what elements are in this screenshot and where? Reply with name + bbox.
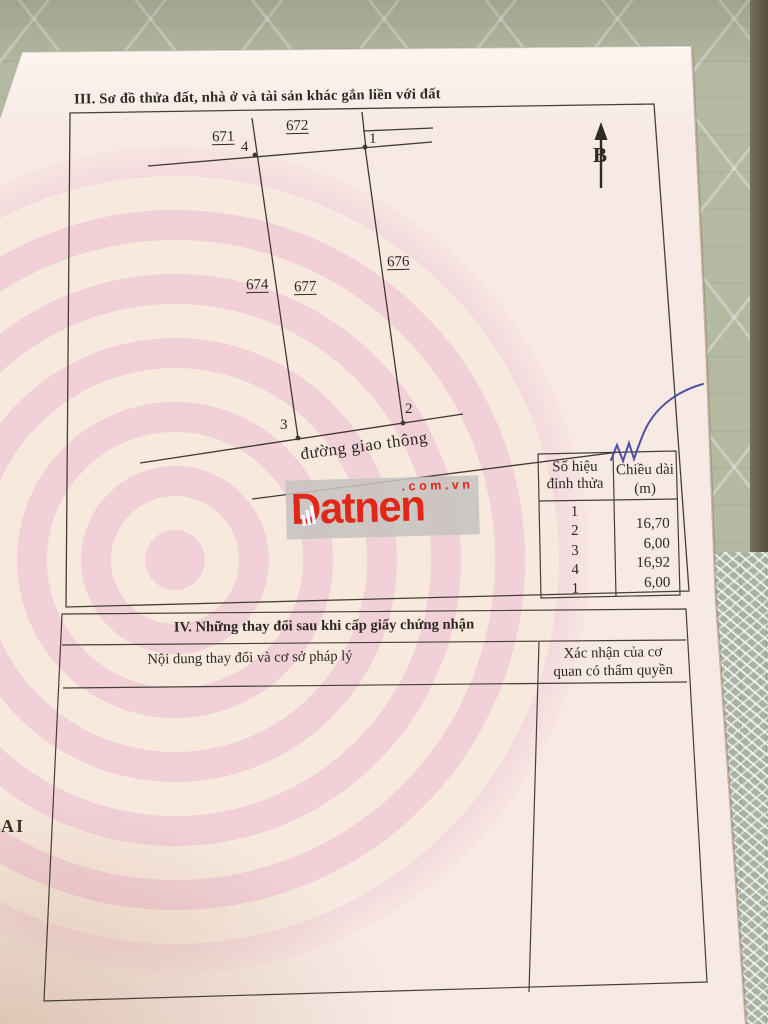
- dimension-table-vertex-ids: 1 2 3 4 1: [538, 503, 611, 600]
- vertex-id-row: 4: [539, 561, 611, 581]
- col2-header-line2: (m): [613, 480, 677, 500]
- length-row: 16,92: [606, 554, 670, 574]
- underlying-text-fragment: AI: [1, 816, 25, 837]
- parcel-label-676: 676: [387, 254, 410, 271]
- dimension-table-lengths: 16,70 6,00 16,92 6,00: [606, 515, 671, 594]
- section4-col2-header: Xác nhận của cơ quan có thẩm quyền: [540, 643, 687, 682]
- vertex-label-3: 3: [280, 417, 288, 434]
- vertex-id-row: 2: [539, 522, 611, 542]
- parcel-label-671: 671: [212, 129, 235, 146]
- north-arrow-label: B: [593, 143, 607, 168]
- vertex-label-2: 2: [405, 401, 413, 418]
- dimension-table-col1-header: Số hiệu đỉnh thửa: [539, 459, 611, 494]
- parcel-label-677: 677: [294, 279, 317, 296]
- vertex-label-4: 4: [241, 139, 249, 156]
- vertex-dot-3: [296, 436, 301, 441]
- length-row: 6,00: [606, 573, 670, 593]
- vertex-id-row: 1: [538, 503, 610, 523]
- vertex-dot-4: [253, 153, 258, 158]
- vertex-label-1: 1: [369, 131, 377, 148]
- dimension-table-col2-header: Chiều dài (m): [613, 461, 677, 500]
- length-row: 16,70: [606, 515, 670, 535]
- col2-header-line1: Chiều dài: [613, 461, 677, 481]
- parcel-label-672: 672: [286, 118, 309, 135]
- plot-vertex-dots: [253, 145, 406, 441]
- photo-canvas: III. Sơ đồ thửa đất, nhà ở và tài sản kh…: [0, 0, 768, 1024]
- col1-header-line2: đỉnh thửa: [539, 476, 611, 494]
- vertex-id-row: 3: [539, 541, 611, 561]
- plot-edge-right: [365, 147, 403, 423]
- vertex-dot-1: [363, 145, 368, 150]
- page-right-edge: [692, 47, 746, 1024]
- vertex-dot-2: [401, 421, 406, 426]
- col2-header-line2: quan có thẩm quyền: [540, 661, 686, 682]
- parcel-label-674: 674: [246, 277, 269, 294]
- col1-header-line1: Số hiệu: [539, 459, 611, 477]
- plot-edge-top: [148, 142, 432, 166]
- vertex-id-row: 1: [539, 580, 611, 600]
- datnen-watermark: .com.vn Datnen: [285, 475, 480, 539]
- pen-scribble-mark: [611, 384, 703, 461]
- building-icon: [300, 505, 318, 526]
- length-row: 6,00: [606, 534, 670, 554]
